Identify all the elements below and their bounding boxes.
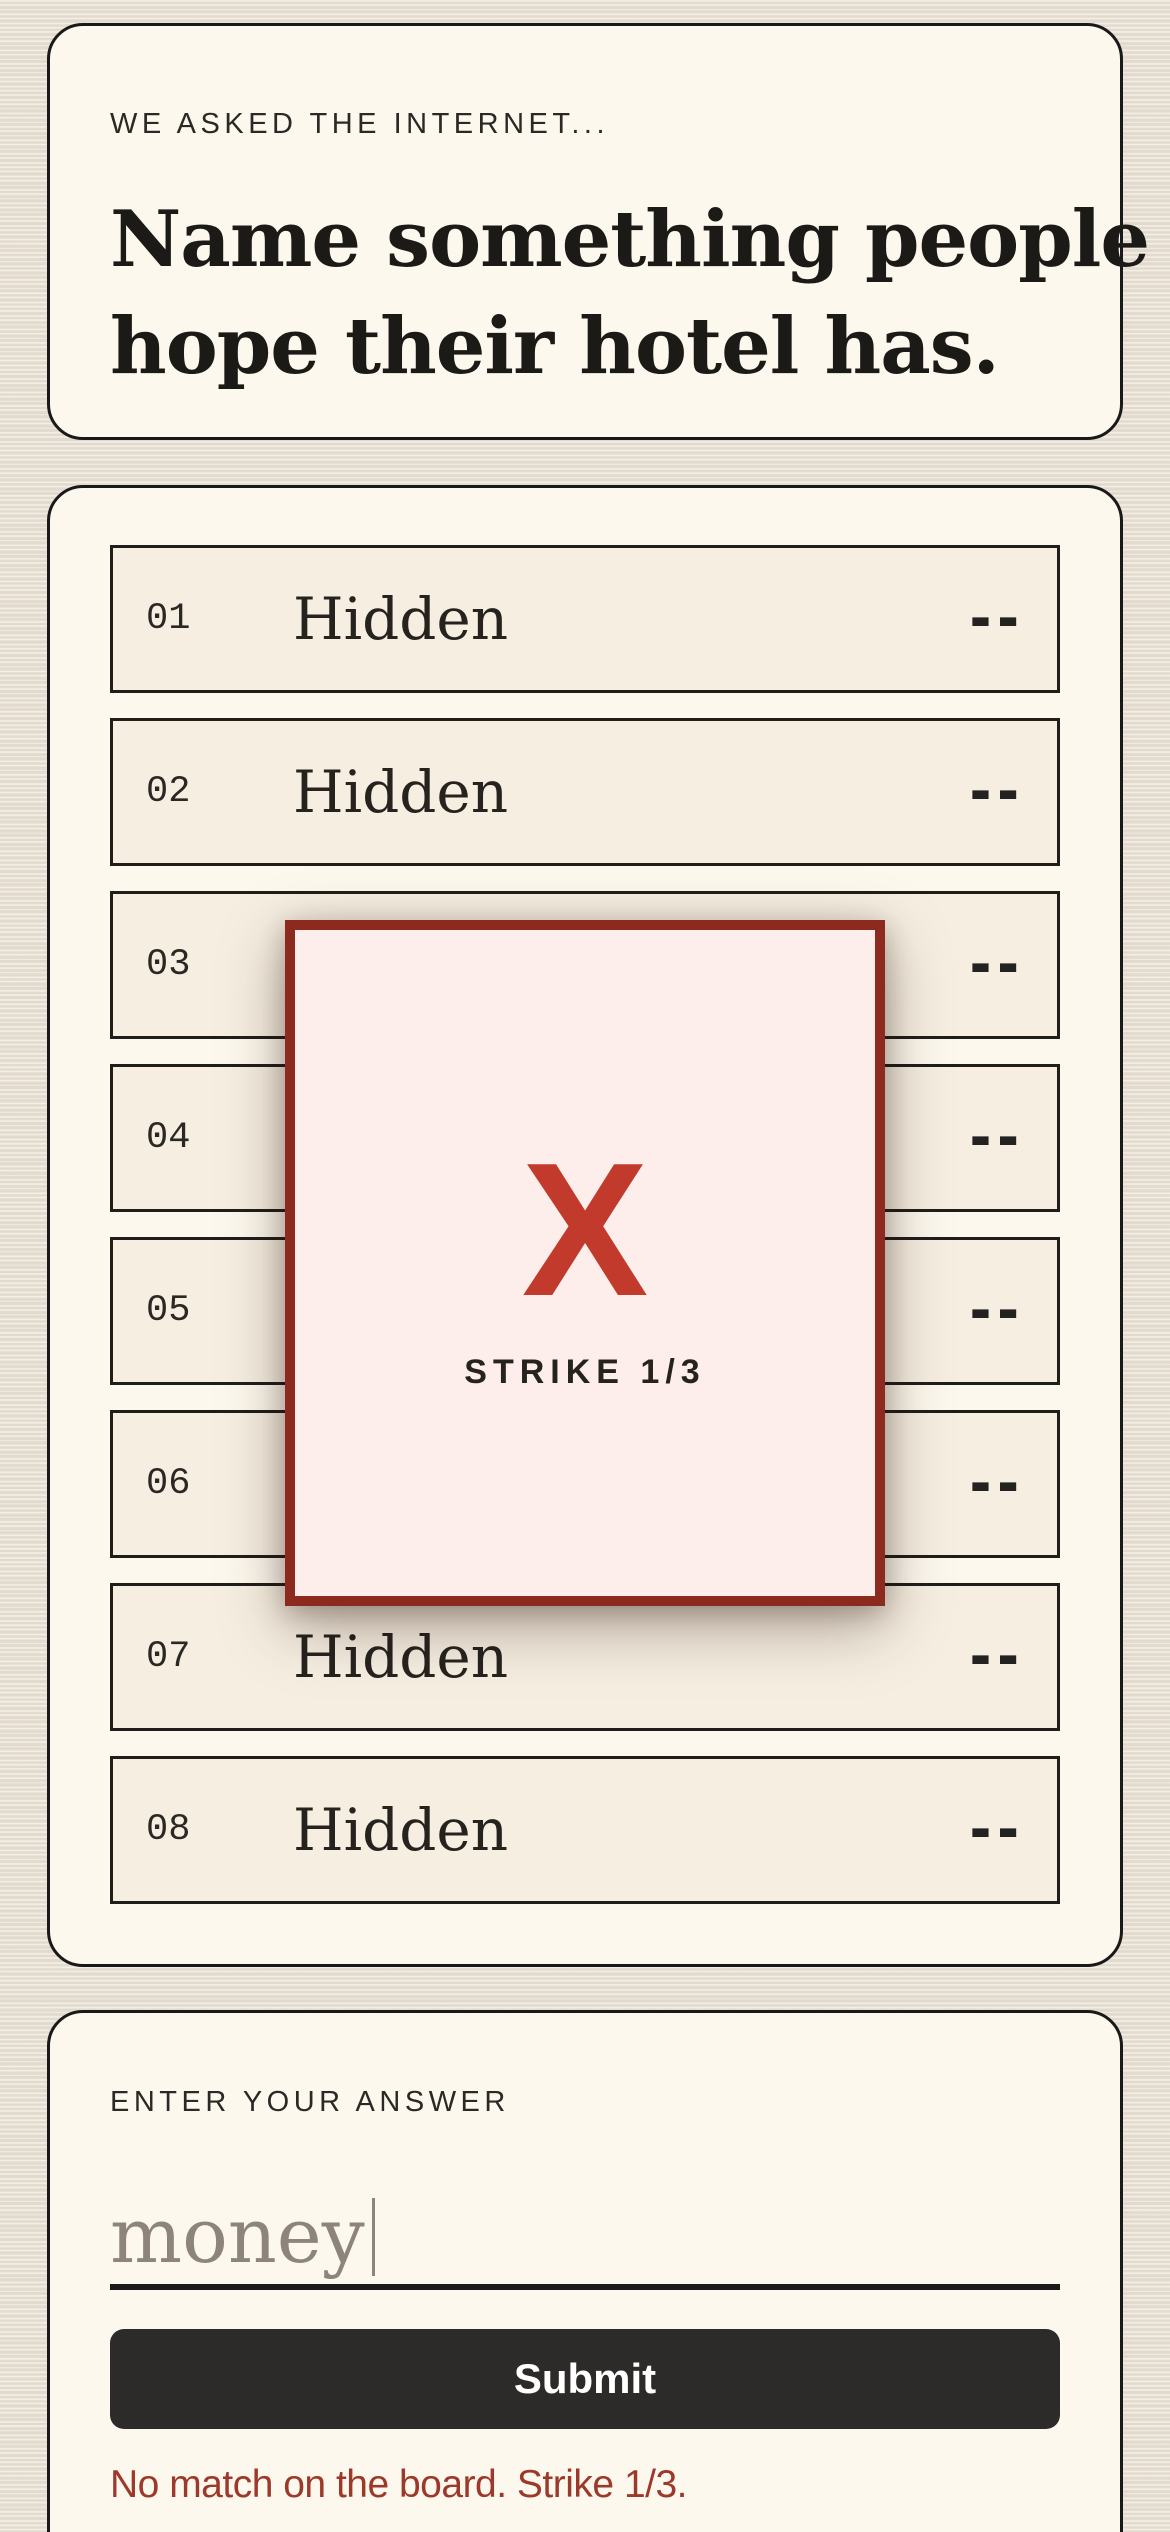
text-cursor-icon [372, 2198, 375, 2276]
answer-row-1: 01 Hidden -- [110, 545, 1060, 693]
row-number: 03 [146, 944, 293, 986]
strike-overlay: X STRIKE 1/3 [285, 920, 885, 1606]
strike-counter-label: STRIKE 1/3 [464, 1353, 705, 1392]
submit-button[interactable]: Submit [110, 2329, 1060, 2429]
page-background: { "question": { "eyebrow": "WE ASKED THE… [0, 0, 1170, 2532]
row-number: 06 [146, 1463, 293, 1505]
row-number: 07 [146, 1636, 293, 1678]
input-underline [110, 2284, 1060, 2290]
row-label: Hidden [293, 585, 967, 653]
row-number: 05 [146, 1290, 293, 1332]
row-points: -- [967, 1457, 1022, 1511]
question-title-line1: Name something people [110, 186, 1060, 293]
question-eyebrow: WE ASKED THE INTERNET... [110, 107, 1060, 142]
row-number: 04 [146, 1117, 293, 1159]
answer-input[interactable]: money [110, 2190, 1060, 2282]
row-points: -- [967, 1630, 1022, 1684]
question-title: Name something people hope their hotel h… [110, 186, 1060, 400]
answer-input-value: money [110, 2190, 365, 2282]
question-card: WE ASKED THE INTERNET... Name something … [47, 23, 1123, 440]
answer-row-2: 02 Hidden -- [110, 718, 1060, 866]
error-message: No match on the board. Strike 1/3. [110, 2463, 1060, 2507]
row-label: Hidden [293, 1623, 967, 1691]
row-number: 02 [146, 771, 293, 813]
row-points: -- [967, 592, 1022, 646]
row-label: Hidden [293, 1796, 967, 1864]
answer-entry-label: ENTER YOUR ANSWER [110, 2085, 1060, 2120]
strike-x-icon: X [522, 1135, 649, 1325]
answer-card: ENTER YOUR ANSWER money Submit No match … [47, 2010, 1123, 2532]
row-points: -- [967, 938, 1022, 992]
question-title-line2: hope their hotel has. [110, 293, 1060, 400]
row-points: -- [967, 1284, 1022, 1338]
row-number: 08 [146, 1809, 293, 1851]
row-points: -- [967, 765, 1022, 819]
row-label: Hidden [293, 758, 967, 826]
row-number: 01 [146, 598, 293, 640]
row-points: -- [967, 1111, 1022, 1165]
answer-row-8: 08 Hidden -- [110, 1756, 1060, 1904]
row-points: -- [967, 1803, 1022, 1857]
